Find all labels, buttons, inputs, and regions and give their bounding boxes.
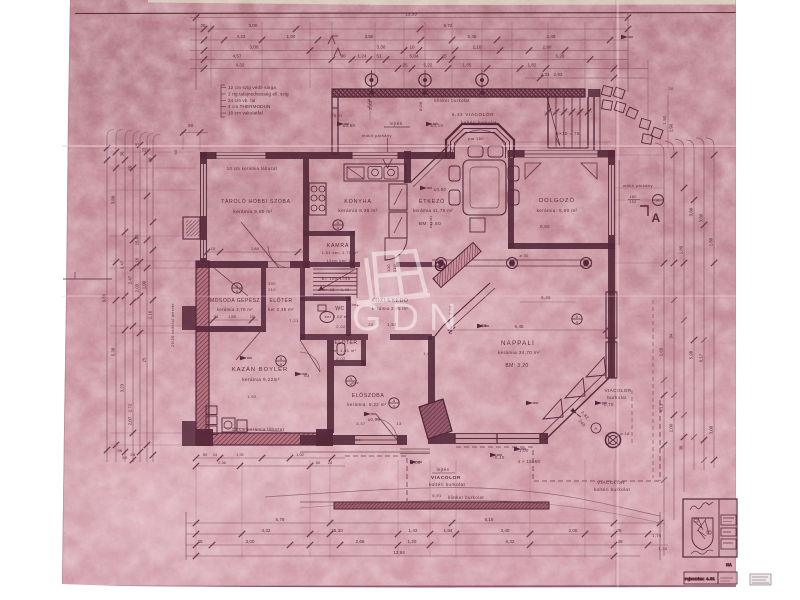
svg-text:25: 25 [197,539,203,544]
svg-text:75 J1: 75 J1 [331,114,342,118]
svg-text:VIACOLOR: VIACOLOR [597,480,625,486]
svg-text:15,80: 15,80 [135,234,140,245]
svg-text:13,94: 13,94 [393,550,405,555]
svg-text:24: 24 [328,461,332,465]
svg-text:2,03: 2,03 [135,283,140,292]
svg-text:3,37: 3,37 [356,421,366,426]
svg-text:25: 25 [142,357,147,362]
svg-text:2,47: 2,47 [128,275,133,284]
svg-text:5,28: 5,28 [556,54,565,59]
svg-text:2,00: 2,00 [569,528,578,533]
svg-text:ø 18: ø 18 [620,431,630,436]
svg-text:BM: 3,20: BM: 3,20 [505,363,528,369]
svg-text:2,02: 2,02 [336,324,346,329]
svg-text:A: A [656,198,659,203]
svg-text:2,90: 2,90 [543,45,552,50]
svg-text:94: 94 [669,333,674,338]
svg-text:4: 4 [337,227,339,231]
svg-text:8,08: 8,08 [418,101,423,111]
svg-text:ELŐSZOBA: ELŐSZOBA [352,392,385,399]
svg-text:10: 10 [250,314,255,319]
svg-text:38: 38 [117,448,123,453]
svg-text:7,21: 7,21 [289,318,299,323]
svg-text:ker 2,36 m²: ker 2,36 m² [268,307,294,312]
svg-text:4,13: 4,13 [659,403,664,412]
svg-text:1,84: 1,84 [444,528,453,533]
svg-text:8,08: 8,08 [366,98,371,108]
svg-text:5,04: 5,04 [410,54,419,59]
svg-text:180: 180 [629,195,637,199]
svg-text:kerámia: 8,22 m²: kerámia: 8,22 m² [347,402,386,407]
svg-text:TÁROLÓ HOBBI SZOBA: TÁROLÓ HOBBI SZOBA [221,198,291,205]
svg-text:90: 90 [340,54,346,59]
svg-text:1,01 ker. 1,70 m²: 1,01 ker. 1,70 m² [322,250,359,255]
svg-text:4: 4 [576,321,578,325]
svg-text:1,20: 1,20 [408,539,417,544]
svg-text:rajzszám: 4.91: rajzszám: 4.91 [685,577,715,581]
svg-text:4 × 15=60: 4 × 15=60 [518,459,541,464]
svg-text:24: 24 [213,453,217,457]
svg-text:A: A [393,399,396,403]
svg-text:4: 4 [350,383,352,387]
svg-text:20: 20 [668,86,674,91]
svg-text:BM: 2,60: BM: 2,60 [419,221,441,227]
svg-text:3,40: 3,40 [501,528,510,533]
svg-text:mükö párkány: mükö párkány [623,183,653,188]
svg-text:1,80: 1,80 [679,245,684,254]
svg-text:8,16: 8,16 [485,517,494,522]
svg-text:2,84: 2,84 [251,246,260,251]
svg-text:4,23: 4,23 [237,34,246,39]
svg-text:ker 2,02 m²: ker 2,02 m² [325,314,350,319]
svg-text:lejtés: lejtés [437,467,450,472]
svg-text:51: 51 [376,54,382,59]
svg-text:mükö párkány: mükö párkány [362,133,392,138]
svg-text:4 cm THERMODUN: 4 cm THERMODUN [228,104,270,109]
svg-text:3,38: 3,38 [377,45,386,50]
svg-text:3,88: 3,88 [689,207,694,216]
svg-text:WC: WC [335,306,344,312]
svg-text:5×15 = 75: 5×15 = 75 [556,131,580,136]
svg-text:5,78: 5,78 [276,517,285,522]
svg-text:kültéri burkolat: kültéri burkolat [429,482,466,487]
svg-text:1,00: 1,00 [287,34,296,39]
svg-text:12 cm szig védö sárga: 12 cm szig védö sárga [228,85,276,90]
svg-text:25,30: 25,30 [331,528,343,533]
svg-text:2,83: 2,83 [554,72,563,77]
svg-text:2,45: 2,45 [468,34,477,39]
svg-text:A: A [350,377,353,381]
svg-text:1,70: 1,70 [652,533,662,538]
svg-text:4,57: 4,57 [233,54,242,59]
svg-text:HA: HA [726,563,732,567]
svg-text:2,02: 2,02 [336,356,346,361]
svg-text:NAPPALI: NAPPALI [501,340,535,347]
svg-text:50: 50 [203,453,207,457]
svg-text:kültéri burkolat: kültéri burkolat [594,487,631,492]
svg-text:38: 38 [214,314,219,319]
svg-text:1,92: 1,92 [236,453,243,457]
svg-text:1,90: 1,90 [662,115,667,125]
svg-text:ker 1,81 m²: ker 1,81 m² [332,348,357,353]
svg-text:5,38: 5,38 [111,347,116,356]
svg-text:10: 10 [409,45,415,50]
svg-text:MOSODA GÉPÉSZ: MOSODA GÉPÉSZ [210,297,260,304]
svg-text:DOLGOZÓ: DOLGOZÓ [539,197,575,204]
svg-text:2,10: 2,10 [473,45,482,50]
svg-text:klinker burkolat: klinker burkolat [448,495,484,500]
svg-text:1,00: 1,00 [142,280,147,289]
svg-text:2,07: 2,07 [128,416,133,425]
svg-text:VIACOLOR: VIACOLOR [431,475,461,481]
svg-text:3,00: 3,00 [249,23,258,28]
svg-text:6,32 VIACOLOR: 6,32 VIACOLOR [452,112,494,117]
svg-text:5,98: 5,98 [689,350,694,359]
svg-text:2,66: 2,66 [356,539,365,544]
svg-text:A: A [651,211,660,225]
svg-text:3,50: 3,50 [365,34,374,39]
svg-text:ELŐTÉR: ELŐTÉR [334,339,357,346]
svg-text:50: 50 [316,461,320,465]
svg-text:A: A [594,426,597,431]
svg-text:klinker burkolat: klinker burkolat [434,98,470,103]
svg-text:4: 4 [393,405,395,409]
svg-text:210: 210 [268,287,276,292]
svg-text:3,88: 3,88 [111,195,116,204]
svg-text:KAMRA: KAMRA [327,243,349,249]
svg-text:24 cm vb. fal: 24 cm vb. fal [228,98,255,103]
svg-text:-1,00: -1,00 [517,448,529,453]
svg-text:1,69: 1,69 [659,347,664,356]
svg-text:1,24: 1,24 [358,54,367,59]
svg-text:KONYHA: KONYHA [344,199,372,205]
svg-text:B= 28 + 3,26: B= 28 + 3,26 [322,287,350,292]
svg-text:29/25 váltófal mérete: 29/25 váltófal mérete [171,303,175,347]
svg-text:1,65: 1,65 [463,63,472,68]
svg-text:1,82: 1,82 [528,63,537,68]
svg-text:28: 28 [130,452,136,457]
svg-text:2,36: 2,36 [218,461,225,465]
svg-text:152: 152 [629,200,637,204]
svg-text:60: 60 [148,157,153,162]
svg-text:3,23: 3,23 [120,383,125,392]
svg-text:4,33: 4,33 [541,72,550,77]
svg-text:25: 25 [441,54,447,59]
svg-text:9,72: 9,72 [444,23,453,28]
svg-text:2,72: 2,72 [128,403,133,412]
svg-text:A: A [280,357,283,361]
svg-text:25: 25 [402,63,408,68]
svg-text:25: 25 [200,23,206,28]
svg-text:13,59: 13,59 [405,12,417,17]
svg-text:bez.: bez. [354,438,363,442]
svg-text:lejtés: lejtés [390,121,403,126]
svg-text:1,88: 1,88 [709,237,714,246]
svg-text:A: A [236,284,239,288]
svg-text:kerámia 11,79 m²: kerámia 11,79 m² [413,208,453,213]
svg-text:±0,00: ±0,00 [434,187,447,192]
svg-text:kerámia 9,22m²: kerámia 9,22m² [242,377,280,382]
svg-text:1,63: 1,63 [423,351,433,356]
svg-text:-1,00: -1,00 [409,460,421,465]
svg-text:100: 100 [386,264,391,272]
svg-text:3,00: 3,00 [709,425,714,434]
svg-text:3,80: 3,80 [699,213,704,222]
svg-text:pm 90: pm 90 [507,218,512,231]
svg-text:9,45: 9,45 [515,324,524,329]
svg-text:3,00: 3,00 [246,539,255,544]
svg-text:1,30: 1,30 [658,546,668,551]
svg-text:kerámiá 8,36 m²: kerámiá 8,36 m² [338,208,377,213]
svg-text:ELŐTÉR: ELŐTÉR [269,297,292,304]
svg-text:1,90: 1,90 [669,123,674,132]
svg-text:4: 4 [236,290,238,294]
svg-text:3,00: 3,00 [250,45,259,50]
svg-text:1,02: 1,02 [296,453,303,457]
svg-text:4,32: 4,32 [262,528,271,533]
svg-text:10 cm vakolatfal: 10 cm vakolatfal [228,111,263,116]
svg-text:ø 30: ø 30 [519,254,528,258]
svg-text:A: A [576,315,579,319]
svg-text:60: 60 [122,455,128,460]
svg-text:5,91: 5,91 [432,493,442,498]
svg-text:4,32: 4,32 [236,63,245,68]
svg-text:1,43: 1,43 [409,528,418,533]
svg-text:±0,00: ±0,00 [368,417,381,422]
svg-text:38: 38 [679,445,684,450]
svg-text:63: 63 [304,373,310,378]
svg-text:-0,40: -0,40 [493,455,505,460]
svg-text:kerámia: 8,60 m²: kerámia: 8,60 m² [537,208,578,213]
svg-text:100: 100 [268,281,276,286]
svg-text:GDN: GDN [352,297,466,339]
svg-text:50: 50 [188,123,194,128]
svg-text:10: 10 [211,246,216,251]
svg-text:10 cm kerámia lábazat: 10 cm kerámia lábazat [227,166,278,171]
svg-text:pm 180: pm 180 [468,136,484,141]
svg-text:10cm ker. láb: 10cm ker. láb [327,258,356,263]
svg-text:B= 16% L=45: B= 16% L=45 [322,276,351,281]
svg-text:1,92: 1,92 [247,394,257,399]
svg-text:0,66: 0,66 [477,323,487,328]
svg-text:6,17: 6,17 [699,353,704,362]
svg-text:ÉTKEZŐ: ÉTKEZŐ [419,198,445,205]
svg-text:23: 23 [142,147,147,152]
svg-text:2,16: 2,16 [135,257,140,266]
svg-text:kerámia 9,80 m²: kerámia 9,80 m² [233,209,272,214]
svg-text:10cm ker. láb.: 10cm ker. láb. [216,326,247,331]
svg-text:2,00: 2,00 [669,423,674,432]
svg-text:0,60: 0,60 [540,224,550,229]
svg-text:-0,70: -0,70 [602,402,614,407]
svg-text:kerámia 34,70 m²: kerámia 34,70 m² [498,350,540,355]
svg-text:13: 13 [396,421,402,426]
svg-text:4: 4 [280,363,282,367]
svg-text:6,32: 6,32 [506,539,515,544]
svg-text:2 rtg talajnedvesség ell. szig: 2 rtg talajnedvesség ell. szig [228,91,289,96]
svg-text:2,16: 2,16 [148,310,153,319]
svg-text:9,86: 9,86 [102,293,107,302]
svg-text:KAZÁN BOYLER: KAZÁN BOYLER [232,366,288,373]
svg-text:1,55: 1,55 [228,314,237,319]
svg-text:kerámia 3,70 m²: kerámia 3,70 m² [217,307,253,312]
svg-text:10: 10 [128,165,133,170]
svg-text:A: A [337,221,340,225]
